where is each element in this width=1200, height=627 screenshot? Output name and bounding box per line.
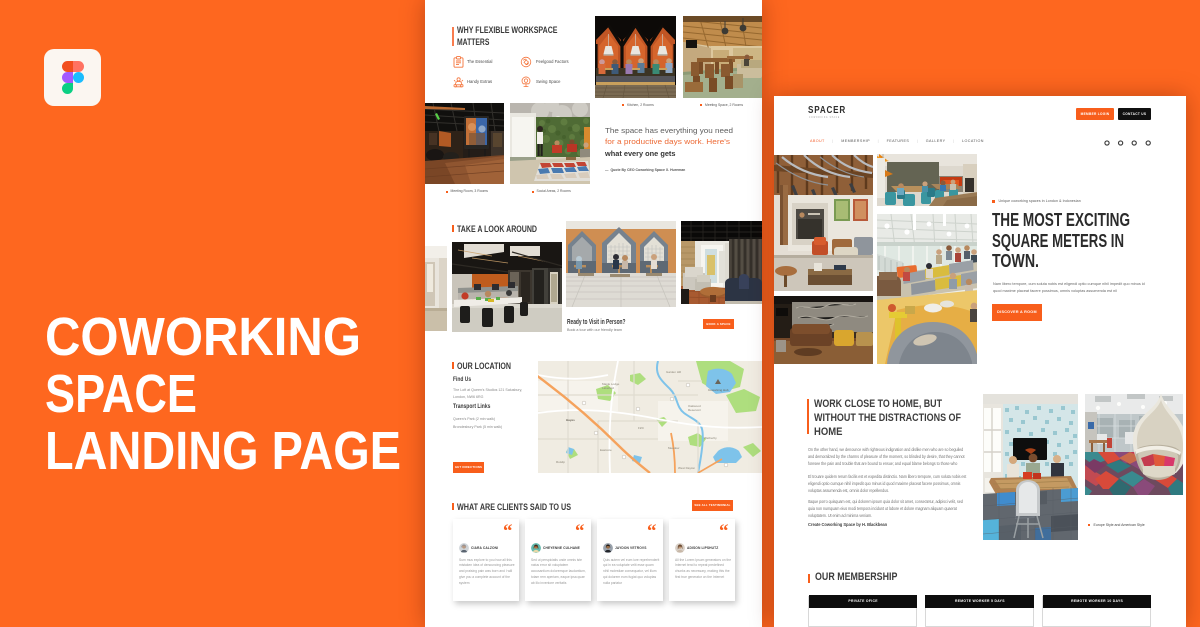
svg-text:West Dayton: West Dayton [678, 466, 695, 470]
svg-text:Firth: Firth [638, 426, 644, 430]
svg-text:Garden Hill: Garden Hill [666, 370, 681, 374]
svg-text:Coworking Hub: Coworking Hub [708, 388, 729, 392]
svg-text:Hayes: Hayes [566, 418, 575, 422]
svg-text:Meadow: Meadow [668, 446, 680, 450]
svg-text:Reservoir: Reservoir [688, 408, 701, 412]
svg-text:Eastcote: Eastcote [600, 448, 612, 452]
svg-text:Ruislip: Ruislip [556, 460, 565, 464]
svg-text:Wetherby: Wetherby [704, 436, 717, 440]
svg-text:Lakefield: Lakefield [602, 386, 614, 390]
